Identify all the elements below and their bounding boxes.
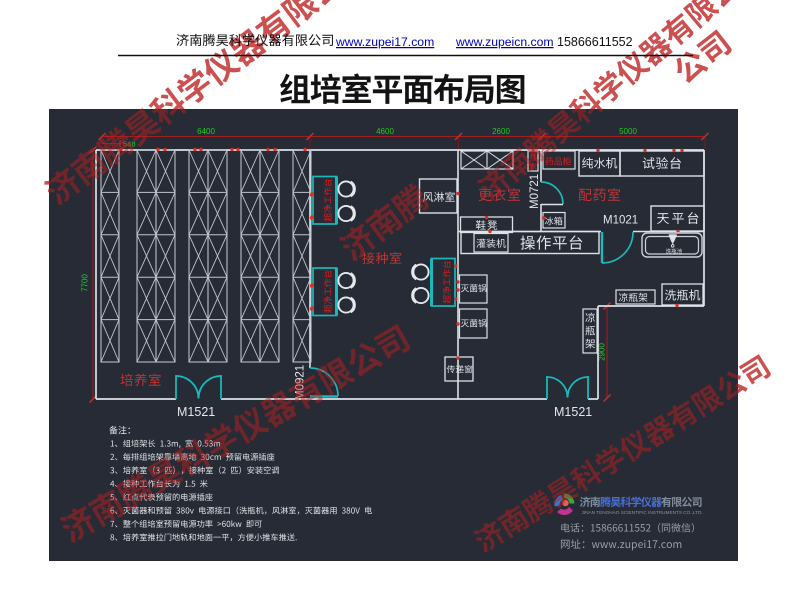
svg-text:15866611552: 15866611552 [557, 35, 633, 49]
svg-text:M1021: M1021 [603, 215, 638, 227]
svg-text:6400: 6400 [197, 127, 215, 136]
svg-text:www.zupei17.com: www.zupei17.com [335, 35, 434, 49]
svg-text:2600: 2600 [492, 127, 510, 136]
svg-text:M0721: M0721 [529, 174, 541, 209]
svg-text:5000: 5000 [619, 127, 637, 136]
svg-text:M1521: M1521 [554, 405, 592, 419]
svg-text:M1521: M1521 [177, 405, 215, 419]
svg-text:www.zupeicn.com: www.zupeicn.com [455, 35, 554, 49]
svg-text:JINAN TENGHAO SCIENTIFIC INSTR: JINAN TENGHAO SCIENTIFIC INSTRUMENTS CO.… [582, 510, 703, 515]
svg-text:7700: 7700 [81, 274, 90, 292]
svg-text:4600: 4600 [376, 127, 394, 136]
